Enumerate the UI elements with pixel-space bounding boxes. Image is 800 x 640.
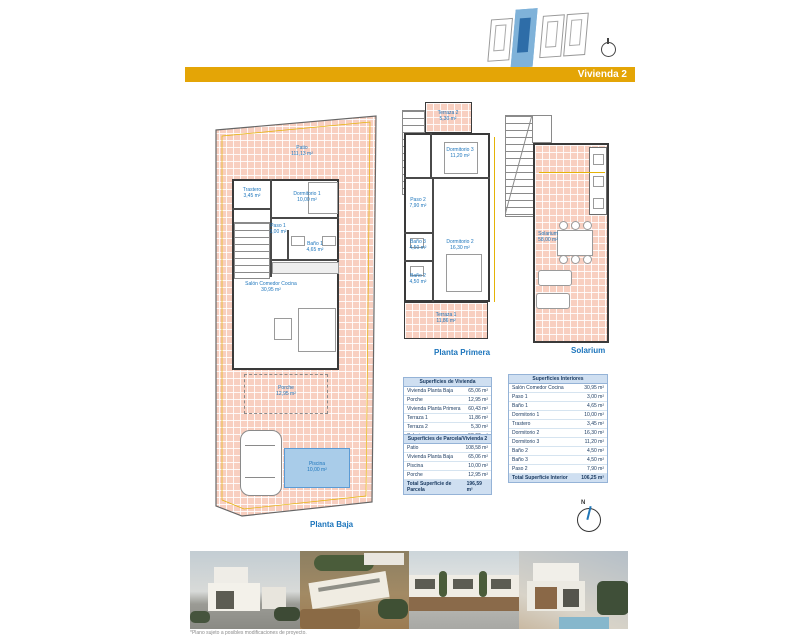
room-label-solarium: Solarium 58,00 m²: [535, 232, 561, 244]
landing: [532, 115, 552, 143]
kitchen-counter: [272, 262, 339, 274]
chair: [571, 221, 580, 230]
table-row: Patio108,58 m²: [404, 444, 491, 453]
plan-caption-planta-primera: Planta Primera: [434, 348, 490, 357]
trees: [378, 599, 408, 619]
unit-title: Vivienda 2: [578, 69, 627, 80]
table-title: Superficies Interiores: [509, 375, 607, 384]
bushes: [190, 611, 210, 623]
render-photo-aerial: [300, 551, 410, 629]
windows: [491, 579, 511, 589]
key-plan-unit-2-core: [517, 18, 531, 53]
table-row: Vivienda Planta Primera60,43 m²: [404, 405, 491, 414]
room-label-dormitorio2: Dormitorio 2 16,30 m²: [438, 240, 482, 252]
key-plan-unit-1: [487, 18, 513, 62]
stairs-diagonal: [505, 115, 532, 215]
table-row: Terraza 25,30 m²: [404, 423, 491, 432]
key-plan-unit-3: [539, 14, 565, 58]
room-label-terraza1: Terraza 1 11,86 m²: [424, 313, 468, 325]
wall: [270, 217, 339, 219]
pool-water: [559, 617, 609, 629]
room-label-terraza2: Terraza 2 5,30 m²: [428, 111, 468, 123]
table-row: Salón Comedor Cocina30,95 m²: [509, 384, 607, 393]
render-photo-villa-pool: [519, 551, 629, 629]
plan-solarium: Solarium 58,00 m² Solarium: [505, 112, 631, 360]
counter-unit: [593, 198, 604, 209]
table-row: Paso 13,00 m²: [509, 393, 607, 402]
table-row: Porche12,95 m²: [404, 471, 491, 480]
wall: [404, 177, 490, 179]
key-plan-unit-3-core: [545, 21, 558, 48]
table-title: Superficies de Parcela/Vivienda 2: [404, 435, 491, 444]
north-compass-icon: N: [577, 508, 601, 532]
room-label-salon: Salón Comedor Cocina 30,95 m²: [236, 282, 306, 294]
villa-side-volume: [262, 587, 286, 609]
sun-lounger: [536, 293, 570, 309]
room-label-patio: Patio 111,13 m²: [272, 146, 332, 158]
wall: [430, 133, 432, 177]
key-plan-unit-2-highlighted: [511, 8, 538, 68]
palm-tree: [479, 571, 487, 597]
disclaimer-caption: *Plano sujeto a posibles modificaciones …: [190, 630, 307, 636]
room-label-bano3: Baño 3 4,50 m²: [406, 240, 430, 252]
car: [240, 430, 282, 496]
room-label-piscina: Piscina 10,00 m²: [289, 462, 345, 474]
wall: [404, 260, 432, 262]
car-windshield: [245, 445, 275, 446]
pool: Piscina 10,00 m²: [284, 448, 350, 488]
hob: [593, 176, 604, 187]
site-key-plan: [487, 6, 594, 65]
table-row: Vivienda Planta Baja65,06 m²: [404, 387, 491, 396]
windows: [415, 579, 435, 589]
render-photo-strip: [190, 551, 628, 629]
plan-sheet: { "header": { "banner_label": "Vivienda …: [0, 0, 800, 640]
dirt-terrain: [300, 609, 360, 629]
key-plan-unit-4: [563, 13, 589, 57]
dining-table: [557, 230, 593, 256]
room-label-paso1: Paso 1 3,00 m²: [264, 224, 292, 236]
room-label-bano2: Baño 2 4,50 m²: [406, 274, 430, 286]
table-row: Vivienda Planta Baja65,06 m²: [404, 453, 491, 462]
room-label-trastero: Trastero 3,45 m²: [236, 188, 268, 200]
garage-doors: [409, 597, 519, 611]
chair: [559, 255, 568, 264]
wood-panel: [535, 587, 557, 609]
render-photo-street-row: [409, 551, 519, 629]
compass-north-label: N: [581, 500, 585, 506]
villa-glazing: [563, 589, 579, 607]
hedge: [597, 581, 629, 615]
sun-lounger: [538, 270, 572, 286]
bushes: [274, 607, 300, 621]
counter: [589, 147, 607, 215]
wall: [404, 232, 432, 234]
table-superficies-interiores: Superficies Interiores Salón Comedor Coc…: [508, 374, 608, 483]
chair: [571, 255, 580, 264]
table-row: Paso 27,90 m²: [509, 465, 607, 474]
table-row: Baño 14,65 m²: [509, 402, 607, 411]
dimension-line: [494, 137, 495, 302]
table-row: Porche12,95 m²: [404, 396, 491, 405]
chair: [583, 255, 592, 264]
chair: [583, 221, 592, 230]
bed: [446, 254, 482, 292]
north-compass-icon-small: [601, 42, 616, 57]
palm-tree: [439, 571, 447, 597]
room-label-paso2: Paso 2 7,90 m²: [406, 198, 430, 210]
far-houses: [364, 553, 404, 565]
dimension-line: [539, 172, 605, 173]
table-superficies-parcela: Superficies de Parcela/Vivienda 2 Patio1…: [403, 434, 492, 495]
table-row: Piscina10,00 m²: [404, 462, 491, 471]
room-label-bano1: Baño 1 4,65 m²: [300, 242, 330, 254]
room-label-porche: Porche 12,95 m²: [254, 386, 318, 398]
table-row: Baño 34,50 m²: [509, 456, 607, 465]
wall: [270, 259, 339, 261]
sofa: [298, 308, 336, 352]
table-title: Superficies de Vivienda: [404, 378, 491, 387]
table-total-row: Total Superficie Interior106,25 m²: [509, 474, 607, 482]
render-photo-villa-dusk: [190, 551, 300, 629]
windows: [453, 579, 473, 589]
room-label-dormitorio3: Dormitorio 3 11,20 m²: [438, 148, 482, 160]
plan-caption-solarium: Solarium: [571, 346, 605, 355]
car-rear-window: [245, 477, 275, 478]
table-row: Terraza 111,86 m²: [404, 414, 491, 423]
table-row: Dormitorio 311,20 m²: [509, 438, 607, 447]
plan-planta-baja: Patio 111,13 m² Trastero 3,45 m² Dormito…: [212, 112, 380, 524]
sink: [593, 154, 604, 165]
wall: [432, 177, 434, 302]
table-row: Dormitorio 110,00 m²: [509, 411, 607, 420]
table-row: Dormitorio 216,30 m²: [509, 429, 607, 438]
compass-needle: [586, 506, 591, 520]
villa-upper-volume: [533, 563, 579, 583]
coffee-table: [274, 318, 292, 340]
key-plan-unit-1-core: [493, 24, 506, 51]
chair: [559, 221, 568, 230]
room-label-dormitorio1: Dormitorio 1 10,00 m²: [284, 192, 330, 204]
table-total-row: Total Superficie de Parcela196,59 m²: [404, 480, 491, 494]
wall: [232, 208, 270, 210]
key-plan-unit-4-core: [569, 19, 582, 46]
title-banner: Vivienda 2: [185, 67, 635, 82]
table-row: Baño 24,50 m²: [509, 447, 607, 456]
plan-caption-planta-baja: Planta Baja: [310, 520, 353, 529]
table-row: Trastero3,45 m²: [509, 420, 607, 429]
villa-glazing: [216, 591, 234, 609]
